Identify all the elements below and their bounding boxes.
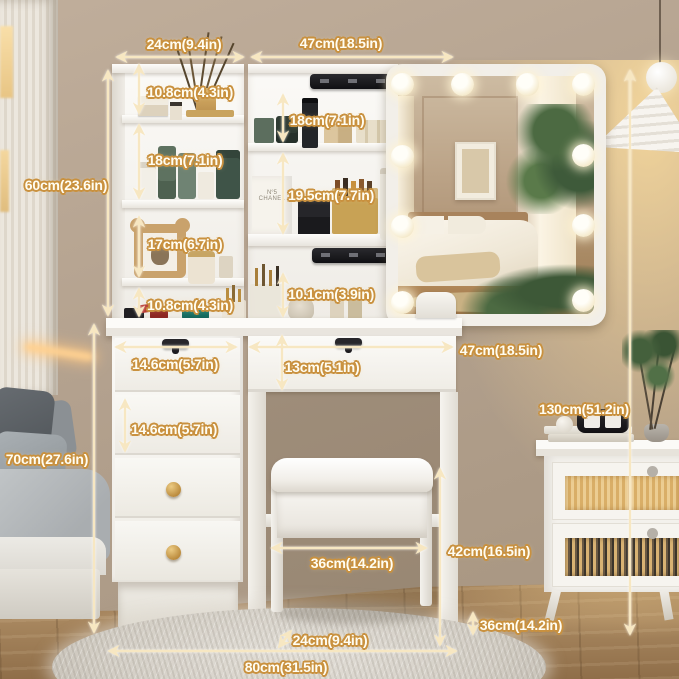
wall-mount-bracket-top	[310, 74, 398, 89]
mirror-bulb	[391, 291, 414, 314]
tabletop	[106, 318, 462, 336]
product-dimension-image: N°5 CHANEL	[0, 0, 679, 679]
tabletop-decor-arch	[416, 292, 456, 318]
dim-stool-width: 36cm(14.2in)	[311, 555, 393, 571]
dim-desk-drawer-width: 47cm(18.5in)	[460, 342, 542, 358]
dim-stool-height: 42cm(16.5in)	[448, 543, 530, 559]
stool-shadow	[278, 602, 434, 624]
wardrobe-niche-light-2	[0, 150, 9, 212]
ribbed-glass-panel-bottom	[565, 538, 679, 576]
stool-box	[277, 490, 427, 538]
center-drawer-handle	[335, 338, 362, 347]
wardrobe-niche-light	[0, 26, 13, 98]
mirror-bulb	[391, 215, 414, 238]
dim-tower-cubby-mid: 18cm(7.1in)	[148, 152, 223, 168]
decor-sphere	[556, 416, 573, 433]
side-cabinet	[536, 440, 679, 625]
dim-desk-height: 70cm(27.6in)	[6, 451, 88, 467]
perfume-box-text2: CHANEL	[252, 196, 292, 202]
stool-cushion	[271, 458, 433, 492]
dim-stool-side-depth: 36cm(14.2in)	[480, 617, 562, 633]
bed	[0, 385, 115, 625]
pendant-lamp-bulb	[646, 62, 677, 93]
dim-total-height: 130cm(51.2in)	[539, 401, 629, 417]
mirror-bulb	[391, 73, 414, 96]
perfume-box: N°5 CHANEL	[252, 176, 292, 234]
dim-mid-cubby-top: 18cm(7.1in)	[290, 112, 365, 128]
dim-left-drawer-height: 14.6cm(5.7in)	[131, 421, 217, 437]
cabinet-knob-bottom	[647, 528, 658, 539]
plant-leaves	[622, 330, 679, 400]
mini-perfume	[219, 256, 233, 278]
dim-tower-cubby-top: 10.8cm(4.3in)	[147, 84, 233, 100]
cabinet-drawer-top	[552, 462, 679, 520]
tower-shelf-2	[122, 200, 244, 208]
cream-jar	[188, 251, 215, 284]
white-jar	[198, 172, 214, 199]
mirror-bulb	[516, 73, 539, 96]
drawer-4-knob	[166, 545, 181, 560]
cabinet-top	[536, 440, 679, 456]
hollywood-mirror	[386, 64, 606, 326]
cabinet-knob-top	[647, 466, 658, 477]
small-perfume	[170, 102, 182, 120]
middle-shelf-2	[248, 234, 398, 246]
dim-total-width: 80cm(31.5in)	[245, 659, 327, 675]
knee-right-panel	[440, 392, 458, 630]
mirror-bulb	[391, 145, 414, 168]
mirror-reflection	[398, 76, 594, 314]
mirror-bulb	[572, 214, 595, 237]
brush-holder	[250, 284, 284, 320]
left-drawer-stack	[112, 336, 243, 582]
cabinet-leg-right	[659, 589, 673, 620]
drawer-1-handle	[162, 339, 189, 348]
dim-stool-leg-depth: 24cm(9.4in)	[293, 632, 368, 648]
ribbed-glass-panel-top	[565, 476, 679, 510]
bed-frame	[0, 569, 100, 619]
reflection-pillows	[410, 216, 486, 234]
middle-shelf-1	[248, 143, 398, 151]
dim-left-drawer-width: 14.6cm(5.7in)	[132, 356, 218, 372]
middle-top-board	[248, 64, 398, 73]
pendant-lamp-cord	[659, 0, 661, 66]
dim-top-shelf-width: 24cm(9.4in)	[147, 36, 222, 52]
dim-mid-cubby-main: 19.5cm(7.7in)	[288, 187, 374, 203]
dim-mirror-section-width: 47cm(18.5in)	[300, 35, 382, 51]
dim-hutch-height: 60cm(23.6in)	[25, 177, 107, 193]
dim-center-drawer-height: 13cm(5.1in)	[285, 359, 360, 375]
reflection-picture-frame	[455, 142, 496, 200]
tower-shelf-3	[122, 278, 244, 286]
mirror-bulb	[451, 73, 474, 96]
mirror-bulb	[572, 144, 595, 167]
mirror-bulb	[572, 73, 595, 96]
dim-tower-cubby-lower: 17cm(6.7in)	[148, 236, 223, 252]
gold-tray	[186, 110, 234, 117]
green-tin	[254, 118, 274, 143]
dim-mid-cubby-bottom: 10.1cm(3.9in)	[288, 286, 374, 302]
drawer-3-knob	[166, 482, 181, 497]
cabinet-drawer-bottom	[552, 523, 679, 587]
dim-tower-cubby-bottom: 10.8cm(4.3in)	[147, 297, 233, 313]
knee-left-panel	[248, 392, 266, 632]
mirror-bulb	[572, 289, 595, 312]
